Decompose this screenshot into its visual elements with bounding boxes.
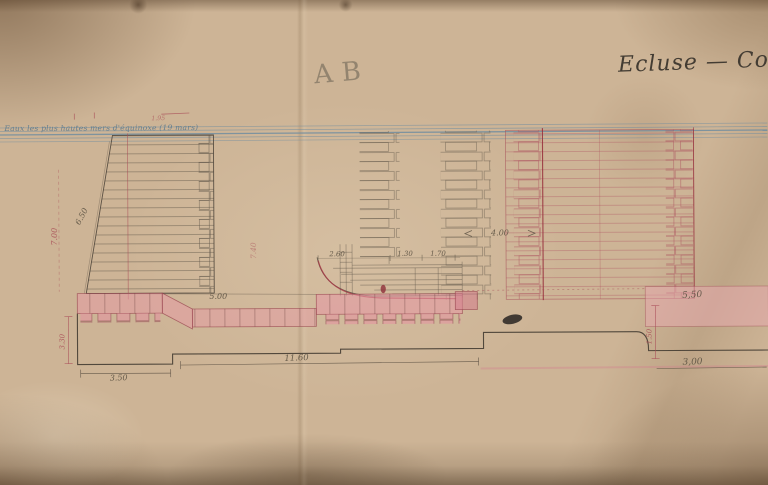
left-wall-elevation xyxy=(83,132,316,299)
mid-height-red-dim: 7.40 xyxy=(249,242,258,259)
left-depth-red-dim: 3.30 xyxy=(58,333,66,349)
waterline-note: Eaux les plus hautes mers d'équinoxe (19… xyxy=(3,123,198,133)
waterline-red-ticks xyxy=(74,112,189,120)
floor-mid-dim: 5.00 xyxy=(209,292,227,301)
pier-gap-dim: 4.00 xyxy=(490,228,509,237)
lock-elevation-drawing: Eaux les plus hautes mers d'équinoxe (19… xyxy=(0,0,768,485)
foundation-band-pink xyxy=(77,286,768,371)
bottom-right-dim: 3,00 xyxy=(682,357,703,368)
left-height-red-dim: 7.00 xyxy=(50,228,59,246)
right-slab-dim: 5,50 xyxy=(682,290,703,301)
right-depth-red-dim: 1.50 xyxy=(645,328,653,344)
ramp-dim-a: 2.60 xyxy=(328,250,345,258)
bottom-left-dim: 3.50 xyxy=(110,373,128,382)
waterline-red-figure: 1.95 xyxy=(151,115,165,122)
ramp-dim-c: 1.70 xyxy=(430,250,446,258)
red-ink-spot xyxy=(381,285,386,293)
drawing-sheet: Ecluse — Cou AB xyxy=(0,0,768,485)
masonry-pier-chains xyxy=(359,130,491,300)
ink-blot xyxy=(502,313,523,326)
ramp-dim-b: 1.30 xyxy=(397,250,413,258)
left-slope-dim: 6.50 xyxy=(74,206,90,226)
right-wall-red-ink xyxy=(505,127,694,300)
bottom-mid-dim: 11.60 xyxy=(284,353,309,364)
